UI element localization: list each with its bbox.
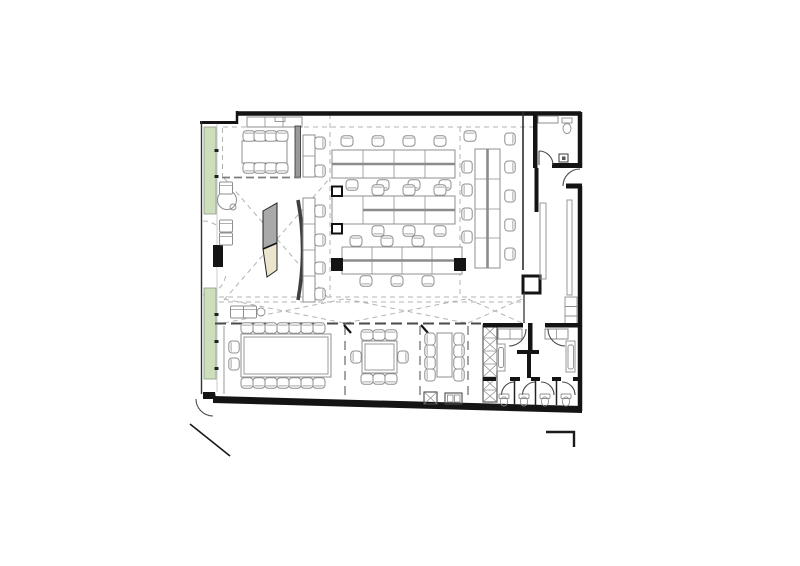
reception-desk-upper <box>263 203 277 249</box>
wall-jog <box>523 276 540 293</box>
column <box>332 187 342 197</box>
floor-plan-canvas <box>0 0 800 566</box>
corridor-door-swing <box>563 169 580 186</box>
high-table <box>437 333 452 377</box>
planter-strip-bottom <box>204 288 216 379</box>
toilet-icon <box>562 118 572 134</box>
corridor-cabinet-right <box>567 200 572 295</box>
door-tick <box>421 325 428 333</box>
chair <box>313 378 325 388</box>
chair <box>434 185 446 195</box>
chair <box>412 236 424 246</box>
partition-wall-gray <box>295 126 301 177</box>
facade-planters <box>204 127 223 379</box>
sink-icon <box>497 344 505 371</box>
chair <box>243 163 255 173</box>
chair <box>313 323 325 333</box>
sink-icon <box>566 341 575 372</box>
chair <box>229 358 239 370</box>
chair <box>289 378 301 388</box>
chair <box>361 374 373 384</box>
chair <box>341 136 353 146</box>
chair <box>425 333 435 345</box>
column-solid <box>331 258 343 271</box>
site-boundary-corner <box>546 432 574 447</box>
wall-cabinet <box>247 117 302 127</box>
chair <box>277 378 289 388</box>
armchair <box>220 182 233 194</box>
chair <box>454 369 464 381</box>
chair <box>276 131 288 141</box>
wc-block <box>483 323 581 406</box>
chair <box>351 351 361 363</box>
entrance-pivot-wall <box>213 245 223 267</box>
chair <box>301 378 313 388</box>
chair <box>434 226 446 236</box>
chair <box>254 131 266 141</box>
chair <box>505 219 515 231</box>
floor-plan-drawing <box>0 0 800 566</box>
chair <box>422 276 434 286</box>
planter-strip-top <box>204 127 216 214</box>
chair <box>425 369 435 381</box>
chair <box>265 378 277 388</box>
chair <box>315 205 325 217</box>
chair <box>346 180 358 190</box>
side-table <box>257 308 265 316</box>
electrical-box-icon <box>559 154 568 162</box>
chair <box>301 323 313 333</box>
chair <box>315 234 325 246</box>
right-wing <box>523 112 581 326</box>
kitchen-column <box>483 325 497 402</box>
chair <box>253 323 265 333</box>
site-lines <box>190 424 574 456</box>
chair <box>381 236 393 246</box>
chair <box>464 131 476 141</box>
chair <box>462 231 472 243</box>
chair <box>454 345 464 357</box>
chair <box>505 248 515 260</box>
chair <box>372 185 384 195</box>
curved-wall <box>298 200 303 300</box>
chair <box>454 333 464 345</box>
chair <box>403 185 415 195</box>
meeting-table-2 <box>362 341 397 373</box>
chair <box>361 330 373 340</box>
chair <box>454 357 464 369</box>
chair <box>425 345 435 357</box>
chair <box>373 374 385 384</box>
site-boundary-diagonal <box>190 424 230 456</box>
reception-desk <box>263 203 277 277</box>
chair <box>372 136 384 146</box>
chair <box>505 161 515 173</box>
chair <box>360 276 372 286</box>
chair <box>403 136 415 146</box>
chair <box>315 288 325 300</box>
chair <box>372 226 384 236</box>
armchair <box>244 306 257 318</box>
chair <box>462 161 472 173</box>
chair <box>265 323 277 333</box>
chair <box>265 131 277 141</box>
chair <box>425 357 435 369</box>
column <box>332 224 342 234</box>
chair <box>398 351 408 363</box>
chair <box>434 136 446 146</box>
chair <box>315 262 325 274</box>
armchair <box>220 233 233 245</box>
chair <box>253 378 265 388</box>
chair <box>254 163 266 173</box>
corridor-cabinet-left <box>540 203 546 279</box>
chair <box>385 330 397 340</box>
chair <box>315 137 325 149</box>
chair <box>241 378 253 388</box>
lobby-wc-wall <box>533 112 538 168</box>
chair <box>462 208 472 220</box>
chair <box>277 323 289 333</box>
chair <box>462 184 472 196</box>
chair <box>276 163 288 173</box>
chair <box>350 236 362 246</box>
chair <box>243 131 255 141</box>
open-office-desks <box>331 149 500 274</box>
stall-door-swings <box>502 382 576 395</box>
meeting-table <box>242 141 287 163</box>
chair <box>265 163 277 173</box>
chair <box>241 323 253 333</box>
chair <box>385 374 397 384</box>
entrance-door-stub <box>203 392 216 399</box>
armchair <box>220 220 233 232</box>
lobby-cabinet <box>538 116 558 123</box>
entrance-door-swing <box>196 399 213 416</box>
chair <box>505 190 515 202</box>
chair <box>391 276 403 286</box>
chair <box>505 133 515 145</box>
chair <box>403 226 415 236</box>
chair <box>289 323 301 333</box>
boardroom-table <box>241 334 331 377</box>
chair <box>315 165 325 177</box>
armchair <box>231 306 244 318</box>
lobby-wc-door-swing <box>539 151 553 165</box>
chair <box>229 341 239 353</box>
chair <box>373 330 385 340</box>
column-solid <box>454 258 466 271</box>
